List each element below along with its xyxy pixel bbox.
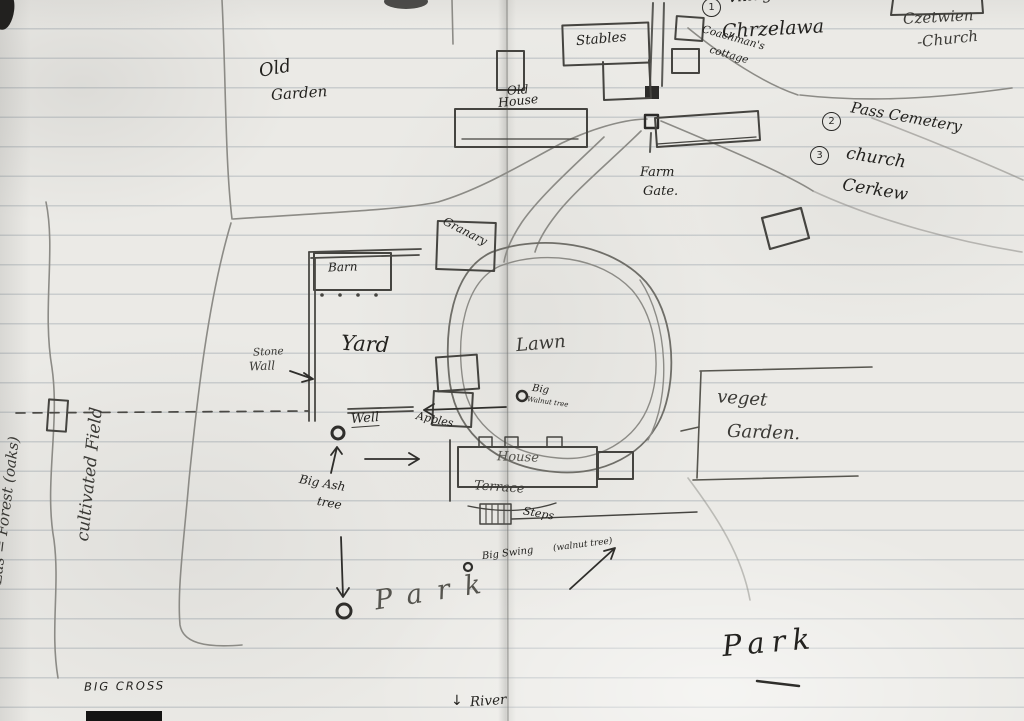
road-west [233, 119, 647, 219]
label-barn: Barn [328, 260, 358, 273]
label-stone-wall-line1: Stone [253, 346, 284, 358]
outbuilding-west-1 [436, 355, 479, 392]
map-page: 1 village Chrzelawa Czetwien -Church 2 P… [0, 0, 1024, 721]
label-big-cross: BIG CROSS [84, 680, 165, 693]
steps-block [480, 504, 511, 524]
label-czetwien-line1: Czetwien [903, 8, 974, 27]
label-old-garden-line2: Garden [271, 84, 328, 103]
lawn-loop [448, 243, 672, 473]
dashed-line [16, 411, 308, 413]
park-underline-stroke [757, 681, 799, 686]
road-right-horizontal [800, 88, 1012, 99]
park-tree-marker-icon [337, 604, 351, 618]
circled-3-icon: 3 [810, 146, 829, 165]
road-east [661, 121, 813, 191]
label-stone-wall-line2: Wall [249, 360, 276, 373]
arrow-down-to-park-icon [337, 537, 349, 597]
gate-stem [650, 133, 651, 152]
label-park-bottom: Park [721, 624, 818, 661]
chimney-3 [547, 437, 562, 447]
arrow-up-to-well-icon [331, 447, 342, 473]
label-well: Well [351, 411, 380, 428]
label-big-walnut-line1: Big [531, 384, 549, 396]
farm-lane [650, 3, 664, 152]
circled-2-icon: 2 [822, 112, 841, 131]
down-arrow-icon: ↓ [451, 694, 463, 708]
label-big-ash-line2: tree [316, 495, 342, 511]
wall-segment-south-1 [348, 407, 413, 409]
barn-dot [356, 293, 360, 297]
forest-line-marker-box [47, 399, 68, 431]
steps-treads [486, 505, 504, 523]
wall-top-inner [311, 255, 419, 258]
path-bottom-right [688, 478, 750, 600]
wall-top-outer [309, 249, 421, 252]
coachman-building-2 [672, 49, 699, 73]
veget-tick [681, 427, 699, 431]
gate-square-upper [645, 86, 659, 99]
boundary-left-top [222, 0, 232, 219]
label-house: House [497, 450, 539, 464]
barn-dot [338, 293, 342, 297]
veget-bottom-line [693, 476, 858, 480]
label-terrace: Terrace [474, 479, 525, 495]
label-farm-gate-line1: Farm [640, 166, 674, 179]
label-veget-line2: Garden. [727, 423, 801, 444]
label-farm-gate-line2: Gate. [643, 185, 678, 198]
swing-arrow-icon [570, 548, 615, 589]
walnut-tree-marker-icon [517, 391, 527, 401]
arrow-right-icon [365, 453, 419, 465]
road-east-far [813, 191, 1022, 252]
veget-left-line [697, 372, 701, 478]
label-lawn: Lawn [515, 333, 566, 355]
barn-dot [320, 293, 324, 297]
stables-extension [603, 60, 651, 100]
forest-edge-line [46, 202, 58, 678]
barn-dot [374, 293, 378, 297]
barn-dots [320, 293, 378, 297]
veget-top-line [700, 367, 872, 371]
label-yard: Yard [340, 333, 389, 356]
stroke-top-left [452, 0, 453, 44]
label-veget-line1: veget [716, 388, 767, 409]
lawn-outline-outer [448, 243, 672, 473]
tilted-building-east [762, 208, 809, 249]
label-river: River [470, 694, 507, 710]
outbuilding-northeast [655, 111, 760, 147]
lawn-outline-inner [461, 258, 656, 459]
well-marker-icon [332, 427, 344, 439]
boundary-left-lower [179, 223, 242, 646]
lane-line-right [662, 3, 664, 86]
